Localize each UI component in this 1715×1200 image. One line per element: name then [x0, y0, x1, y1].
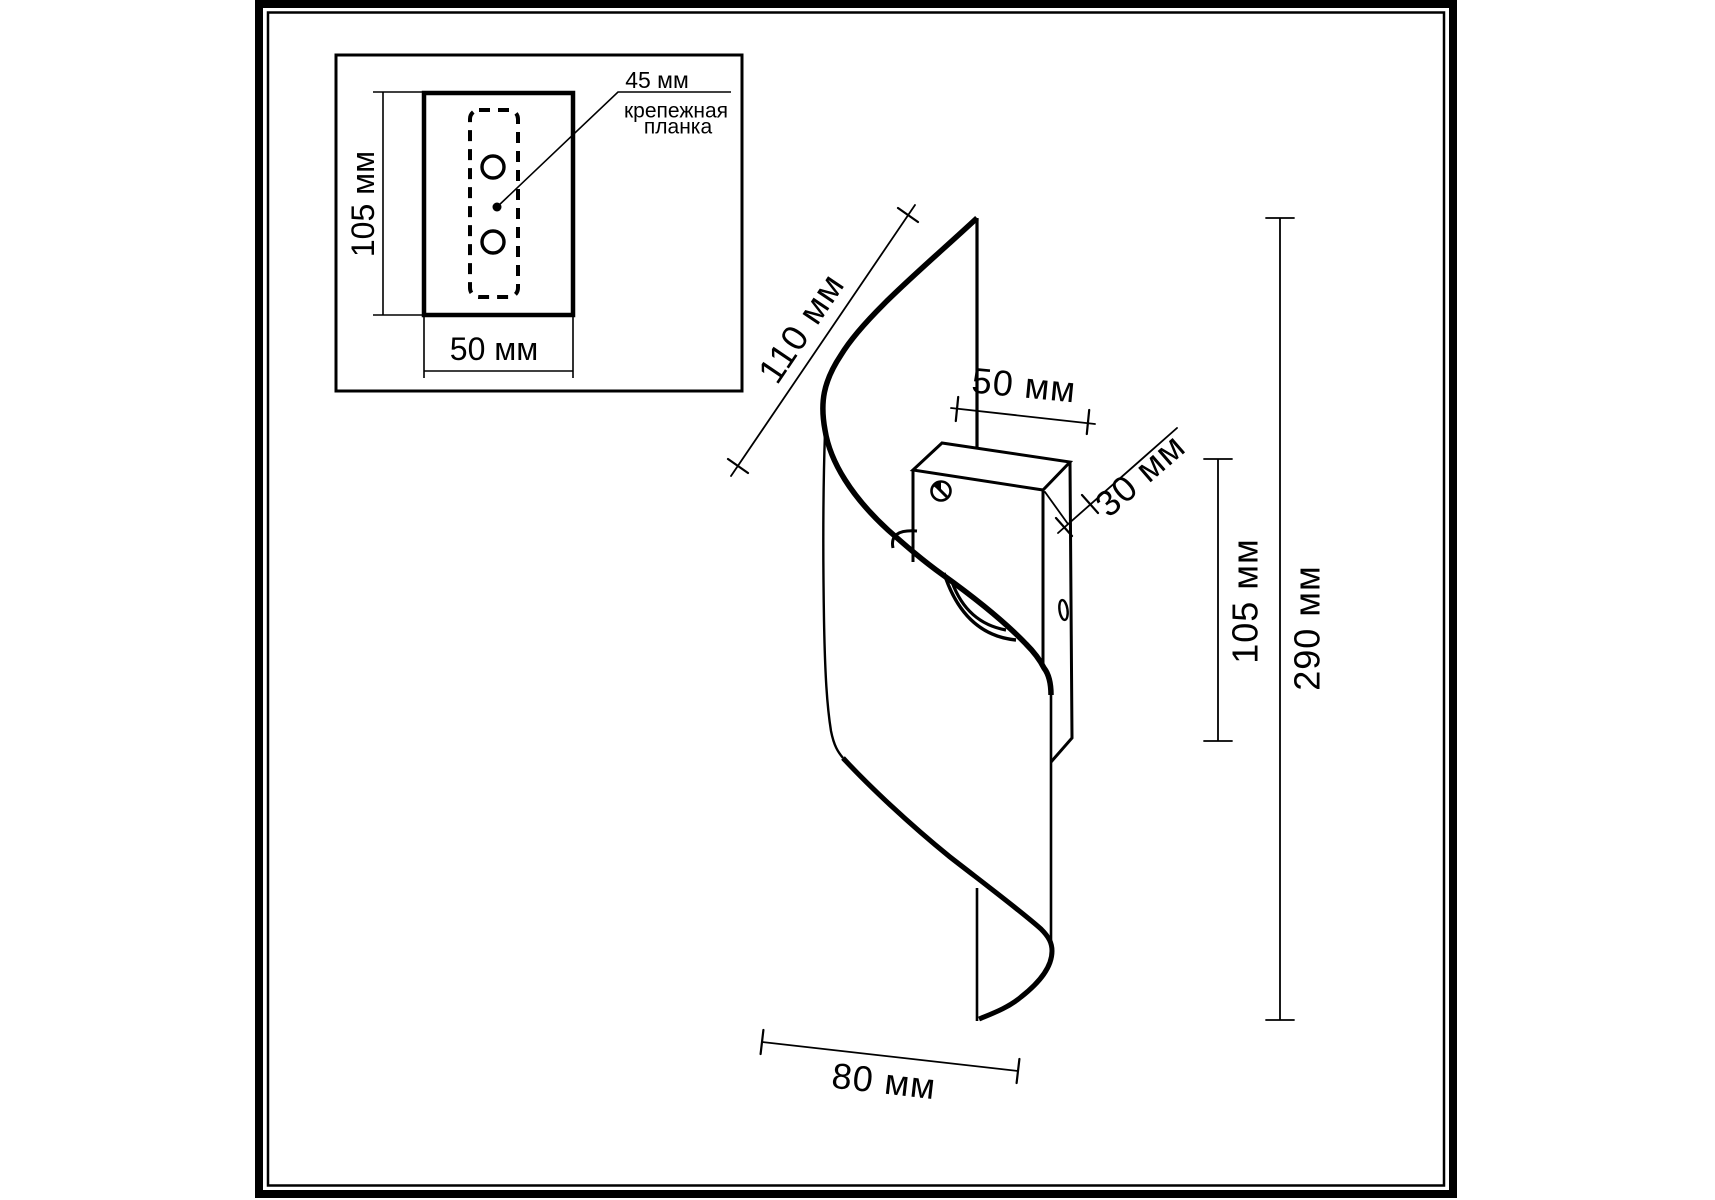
mounting-plate-inset: 105 мм 50 мм 45 мм крепежная планка — [336, 55, 742, 391]
technical-drawing-page: 105 мм 50 мм 45 мм крепежная планка — [0, 0, 1715, 1200]
dim-105-label: 105 мм — [1225, 538, 1266, 664]
hole-spacing-label: 45 мм — [625, 67, 689, 93]
plate-note-line2: планка — [644, 116, 713, 139]
inset-width-dimension-label: 50 мм — [450, 331, 538, 367]
dim-290-label: 290 мм — [1287, 565, 1328, 691]
sconce-dimension-drawing: 105 мм 50 мм 45 мм крепежная планка — [0, 0, 1715, 1200]
inset-height-dimension-label: 105 мм — [345, 151, 381, 257]
